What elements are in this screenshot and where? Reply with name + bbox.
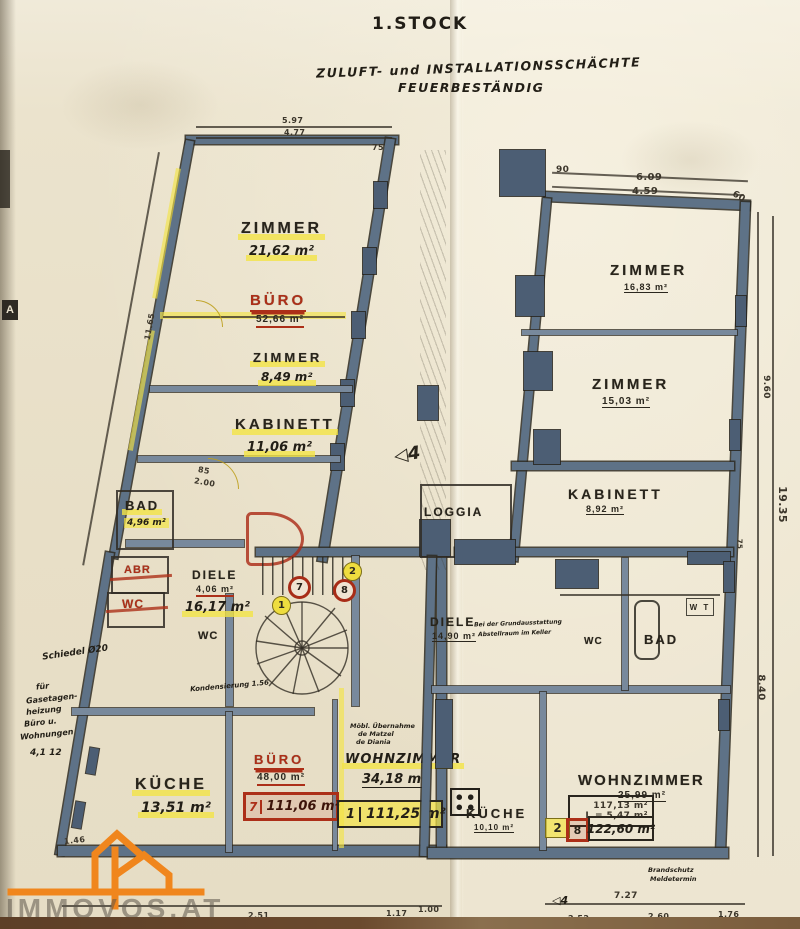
dim-label: 6.09 <box>636 172 662 183</box>
room-label-red: BÜRO <box>250 292 306 312</box>
handnote: de Diania <box>356 738 391 746</box>
window-pier <box>374 182 387 208</box>
dim-label: 8.40 <box>756 674 767 700</box>
shaft-block <box>418 386 438 420</box>
handnote: Wohnungen <box>20 727 74 742</box>
total-area: 111,25 m² <box>361 806 446 822</box>
total-box-red: 7 111,06 m² <box>243 792 339 821</box>
room-label: ZIMMER <box>250 350 325 367</box>
room-label: DIELE <box>430 615 475 629</box>
left-plan-lower-wall-left <box>55 552 113 855</box>
handnote: Möbl. Übernahme <box>350 722 415 730</box>
calc-line: 117,13 m² <box>593 801 648 811</box>
dim-label: 19.35 <box>776 486 789 523</box>
window-pier <box>363 248 376 274</box>
dim-line <box>772 216 774 856</box>
room-label: KABINETT <box>232 416 338 435</box>
handnote: 4,1 12 <box>30 748 62 758</box>
window-pier <box>719 700 729 730</box>
room-label-red: BÜRO <box>254 752 304 770</box>
window-pier <box>736 296 746 326</box>
top-marker-8-total: 8 <box>566 818 589 842</box>
paper-left-shadow <box>0 0 16 929</box>
dim-label: 5.97 <box>282 116 303 125</box>
divider-line <box>163 316 345 318</box>
dim-label: 85 <box>197 465 210 476</box>
edge-mark <box>0 150 10 208</box>
room-label: BAD <box>644 632 678 647</box>
room-label: WC <box>584 636 603 647</box>
room-label: ZIMMER <box>610 262 687 279</box>
room-area: 8,92 m² <box>586 504 624 515</box>
room-label: ZIMMER <box>238 220 325 240</box>
window-pier <box>341 380 354 406</box>
bath-line <box>560 594 720 596</box>
handnote-schiedel: Schiedel Ø20 <box>42 643 109 662</box>
room-area: 14,90 m² <box>432 631 476 642</box>
room-area: 34,18 m² <box>362 772 427 788</box>
dim-line <box>545 903 745 905</box>
room-area: 10,10 m² <box>474 823 514 833</box>
room-area: 11,06 m² <box>244 440 315 457</box>
dim-label: 9.60 <box>761 375 771 399</box>
dim-label: 4.59 <box>632 186 658 197</box>
room-area: 52,66 m² <box>256 314 304 328</box>
dim-line <box>196 137 392 139</box>
room-area: 21,62 m² <box>246 244 317 261</box>
kitchen-divider <box>226 712 232 852</box>
room-area: 4,06 m² <box>196 584 234 597</box>
total-area: 111,06 m² <box>262 799 340 814</box>
interior-wall <box>522 330 737 335</box>
dim-label: 75 <box>735 539 743 550</box>
top-marker-7: 7 <box>288 576 311 599</box>
room-label: BAD <box>122 498 162 515</box>
dim-label: 75 <box>372 143 384 152</box>
scanned-floorplan: 1.STOCK ZULUFT- und INSTALLATIONSSCHÄCHT… <box>0 0 800 929</box>
dim-line <box>757 212 759 857</box>
unit-number: 7 <box>246 800 262 814</box>
unit-number: 1 <box>342 807 361 822</box>
handnote: Gasetagen- <box>26 691 78 705</box>
corner-label: A <box>2 300 18 320</box>
room-label: WOHNZIMMER <box>578 772 705 789</box>
right-plan-wall-bottom <box>428 848 728 858</box>
top-marker-8: 8 <box>333 579 356 602</box>
room-label: KABINETT <box>568 486 663 502</box>
arrow-note: ◁4 <box>552 894 568 907</box>
shaft-block <box>524 352 552 390</box>
handnote: Meldetermin <box>650 875 697 883</box>
room-label: KÜCHE <box>466 806 527 821</box>
room-label: LOGGIA <box>424 505 483 519</box>
window-pier <box>730 420 740 450</box>
shaft-block <box>500 150 545 196</box>
bath-wall <box>622 558 628 690</box>
shaft-block <box>556 560 598 588</box>
room-area-hand: 16,17 m² <box>182 600 253 617</box>
unit-marker-2: 2 <box>343 562 362 581</box>
shaft-block <box>516 276 544 316</box>
interior-wall <box>150 386 352 392</box>
window-pier <box>724 562 734 592</box>
window-pier <box>72 801 85 828</box>
room-area: 8,49 m² <box>258 370 316 386</box>
kitchen-counter <box>436 700 452 768</box>
handnote: Büro u. <box>24 716 58 728</box>
room-area: 4,96 m² <box>124 518 169 528</box>
dim-label: 7.27 <box>614 891 638 901</box>
handnote: für <box>36 681 50 691</box>
room-label-red: ABR <box>124 564 151 576</box>
handnote: heizung <box>26 704 62 717</box>
unit-marker-1: 1 <box>272 596 291 615</box>
handnote: Brandschutz <box>648 866 694 874</box>
room-label: KÜCHE <box>132 776 210 796</box>
photo-table-edge <box>0 917 800 929</box>
dim-label: 90 <box>556 165 569 175</box>
loggia-block <box>455 540 515 564</box>
arrow-note: ◁4 <box>393 442 422 466</box>
room-label: ZIMMER <box>592 376 669 393</box>
room-label: WC <box>198 630 218 642</box>
interior-wall <box>432 686 730 693</box>
room-label-red: WC <box>122 597 144 611</box>
room-area: 16,83 m² <box>624 282 668 293</box>
window-pier <box>86 747 99 774</box>
room-area: 48,00 m² <box>257 772 305 786</box>
floor-title: 1.STOCK <box>372 14 468 34</box>
room-area: 15,03 m² <box>602 396 650 408</box>
bathtub-icon <box>634 600 660 660</box>
door-arc <box>196 300 223 327</box>
window-pier <box>352 312 365 338</box>
shaft-block <box>534 430 560 464</box>
total-box: 122,60 m² <box>588 816 654 841</box>
room-label: DIELE <box>192 568 237 582</box>
room-area: 13,51 m² <box>138 800 214 818</box>
washbasin-label: W T <box>686 598 714 616</box>
shaft-note-line2: FEUERBESTÄNDIG <box>398 80 544 95</box>
total-area: 122,60 m² <box>587 822 655 836</box>
kitchen-wall <box>72 708 314 715</box>
dim-label: 4.77 <box>284 128 305 137</box>
handnote: de Matzel <box>358 730 394 738</box>
